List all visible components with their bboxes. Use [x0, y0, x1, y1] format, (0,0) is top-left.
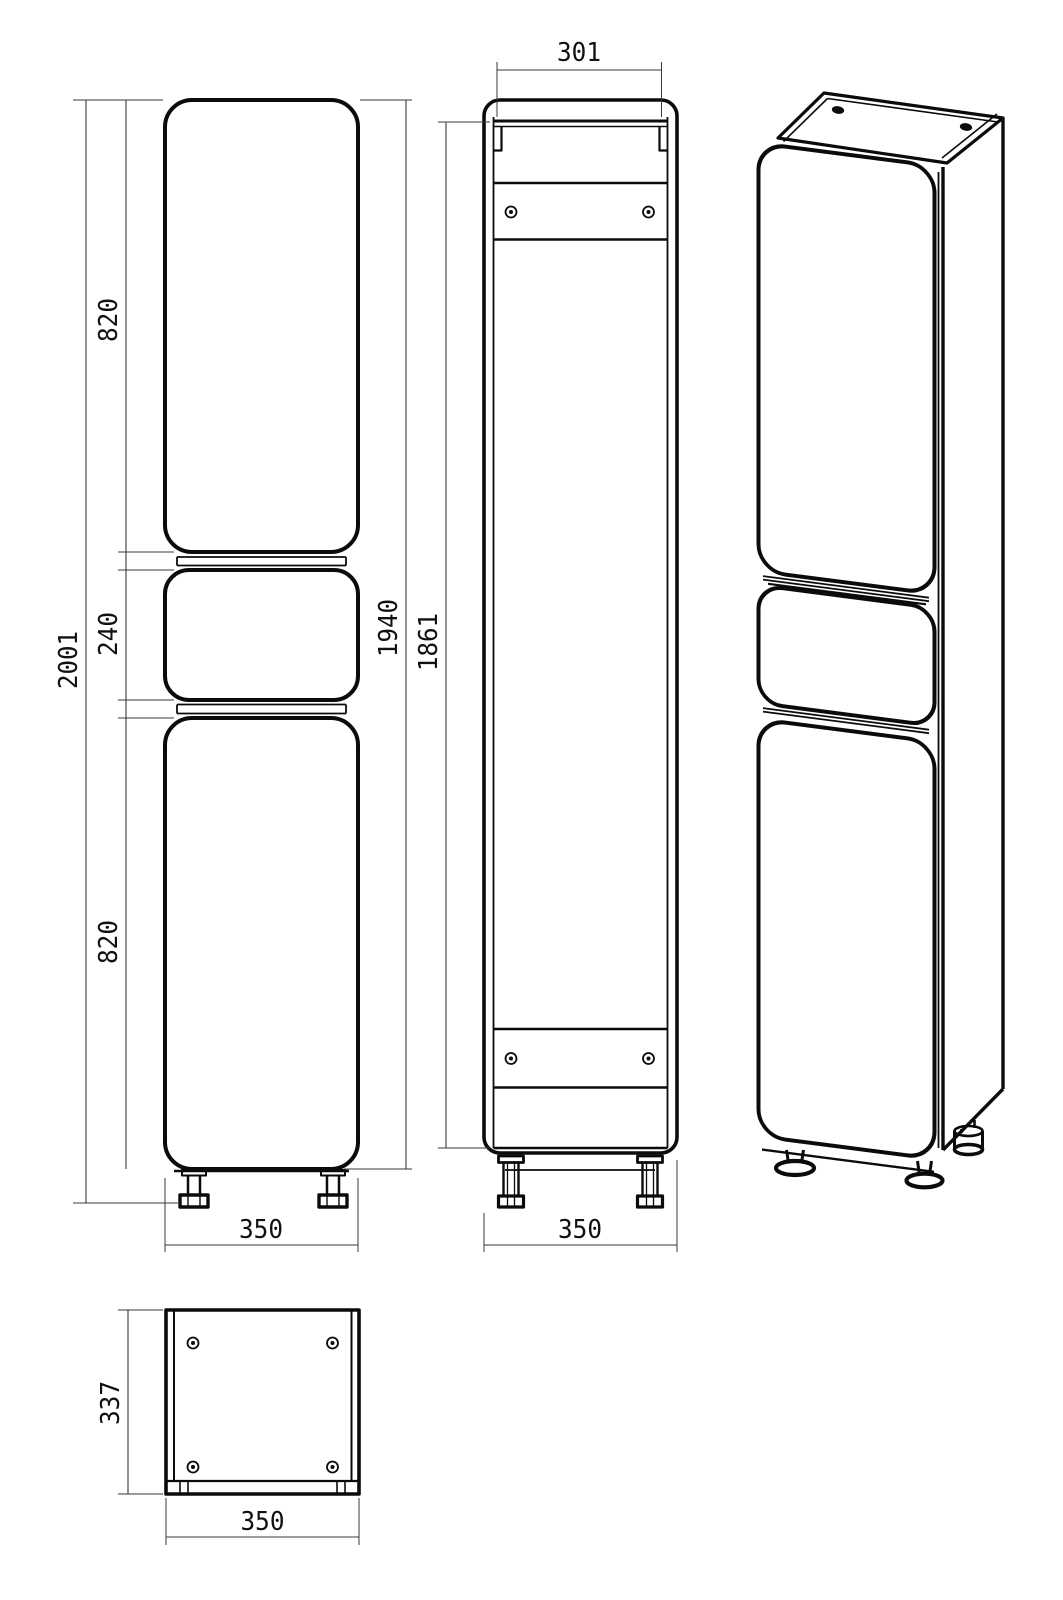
bottom-foot-plates — [180, 1481, 345, 1494]
front-left-foot — [180, 1170, 208, 1207]
drawing-sheet: 2001 820 240 820 1940 350 — [0, 0, 1063, 1600]
iso-upper-door — [759, 143, 935, 594]
front-lower-door — [165, 718, 358, 1169]
back-lower-rail — [494, 1029, 668, 1088]
dim-bottom-width: 350 — [241, 1507, 285, 1537]
iso-bottom-edge — [943, 1089, 1003, 1150]
back-left-foot — [499, 1156, 524, 1207]
back-carcass-outline — [484, 100, 677, 1153]
isometric-view — [759, 93, 1004, 1187]
dim-front-lower-door-height: 820 — [94, 920, 124, 964]
bottom-screw-holes — [188, 1338, 339, 1473]
back-right-foot — [638, 1156, 663, 1207]
back-dimension-lines — [446, 70, 677, 1245]
dim-back-width: 350 — [558, 1215, 602, 1245]
iso-drawer — [759, 585, 935, 726]
dim-front-upper-door-height: 820 — [94, 298, 124, 342]
iso-lower-door — [759, 719, 935, 1159]
back-right-hook — [660, 127, 668, 151]
dim-front-overall-height: 2001 — [54, 631, 84, 689]
front-drawer — [165, 570, 358, 700]
dim-back-top-opening-width: 301 — [557, 38, 601, 68]
front-extension-lines — [73, 100, 412, 1252]
front-view: 2001 820 240 820 1940 350 — [54, 100, 412, 1252]
iso-rear-right-foot — [955, 1120, 983, 1155]
bottom-dimension-lines — [128, 1310, 359, 1537]
back-upper-rail — [494, 183, 668, 240]
bottom-view: 337 350 — [96, 1310, 359, 1545]
cabinet-technical-drawing: 2001 820 240 820 1940 350 — [0, 0, 1063, 1600]
front-upper-door — [165, 100, 358, 552]
dim-front-drawer-height: 240 — [94, 612, 124, 656]
iso-front-right-foot — [907, 1161, 943, 1187]
iso-front-face — [759, 143, 935, 1172]
dim-front-width: 350 — [239, 1215, 283, 1245]
dim-bottom-depth: 337 — [96, 1381, 126, 1425]
back-view: 301 1861 350 — [414, 38, 677, 1252]
bottom-extension-lines — [118, 1310, 359, 1545]
front-right-foot — [319, 1170, 347, 1207]
back-left-hook — [494, 127, 502, 151]
dim-back-panel-height: 1861 — [414, 613, 444, 671]
front-gap-lower — [177, 705, 346, 714]
dim-front-carcass-height: 1940 — [374, 599, 404, 657]
front-gap-upper — [177, 557, 346, 566]
